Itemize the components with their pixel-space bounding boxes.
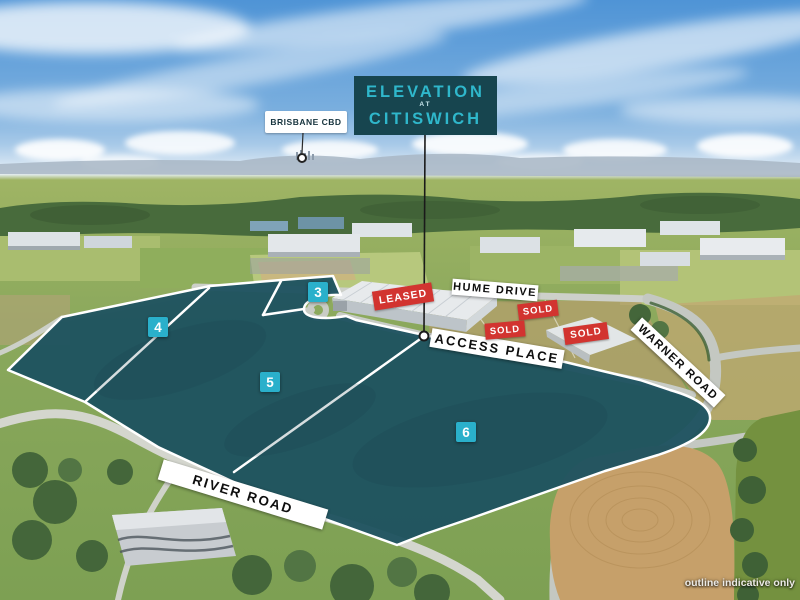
aerial-site-photo: ELEVATION AT CITISWICH BRISBANE CBD HUME… [0,0,800,600]
sign-title-line3: CITISWICH [369,111,482,128]
site-entry-marker-icon [420,332,429,341]
lot-badge-3: 3 [308,282,328,302]
sign-title-line2: AT [419,102,431,109]
disclaimer-text: outline indicative only [640,577,795,589]
lot-badge-5: 5 [260,372,280,392]
sign-title-line1: ELEVATION [366,84,485,101]
development-sign: ELEVATION AT CITISWICH [354,76,497,135]
cbd-marker-icon [298,154,306,162]
lot-badge-4: 4 [148,317,168,337]
lot-badge-6: 6 [456,422,476,442]
cbd-callout: BRISBANE CBD [265,111,347,133]
pump-station-building [104,504,250,580]
